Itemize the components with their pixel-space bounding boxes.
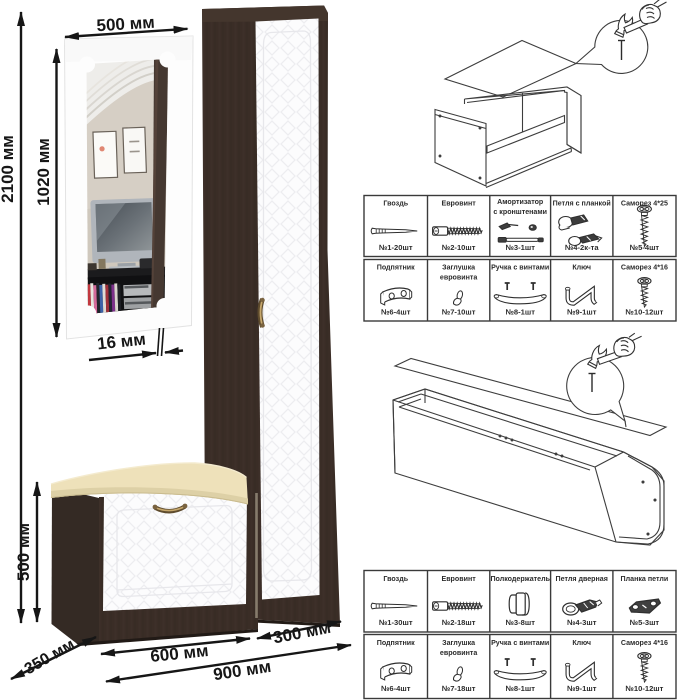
svg-text:№7-10шт: №7-10шт bbox=[442, 308, 476, 317]
svg-text:№1-30шт: №1-30шт bbox=[379, 618, 413, 627]
svg-text:Евровинт: Евровинт bbox=[441, 200, 476, 208]
svg-text:№4-3шт: №4-3шт bbox=[567, 618, 597, 627]
svg-text:№8-1шт: №8-1шт bbox=[505, 308, 535, 317]
svg-text:Гвоздь: Гвоздь bbox=[383, 200, 408, 208]
svg-text:Ручка с винтами: Ручка с винтами bbox=[491, 639, 549, 647]
svg-text:№6-4шт: №6-4шт bbox=[381, 308, 411, 317]
svg-text:Петля дверная: Петля дверная bbox=[556, 575, 608, 583]
svg-text:№10-12шт: №10-12шт bbox=[625, 684, 663, 693]
svg-text:Гвоздь: Гвоздь bbox=[383, 575, 408, 583]
svg-text:№5-3шт: №5-3шт bbox=[630, 618, 660, 627]
svg-text:№3-1шт: №3-1шт bbox=[505, 243, 535, 252]
svg-text:№6-4шт: №6-4шт bbox=[381, 684, 411, 693]
svg-text:Подпятник: Подпятник bbox=[377, 264, 415, 272]
svg-text:Полкодержатель: Полкодержатель bbox=[490, 575, 550, 583]
svg-text:№9-1шт: №9-1шт bbox=[567, 684, 597, 693]
svg-text:№9-1шт: №9-1шт bbox=[567, 308, 597, 317]
svg-text:Саморез 4*16: Саморез 4*16 bbox=[621, 264, 668, 272]
svg-text:№5-4шт: №5-4шт bbox=[630, 243, 660, 252]
svg-text:Заглушка: Заглушка bbox=[442, 639, 475, 647]
svg-text:№10-12шт: №10-12шт bbox=[625, 308, 663, 317]
svg-text:№1-20шт: №1-20шт bbox=[379, 243, 413, 252]
svg-text:500 мм: 500 мм bbox=[14, 523, 33, 581]
svg-text:с кронштенами: с кронштенами bbox=[493, 208, 547, 216]
svg-text:№2-18шт: №2-18шт bbox=[442, 618, 476, 627]
svg-text:евровинта: евровинта bbox=[440, 274, 477, 282]
svg-text:№2-10шт: №2-10шт bbox=[442, 243, 476, 252]
svg-text:Подпятник: Подпятник bbox=[377, 639, 415, 647]
svg-text:евровинта: евровинта bbox=[440, 649, 477, 657]
svg-text:№8-1шт: №8-1шт bbox=[505, 684, 535, 693]
svg-text:№3-8шт: №3-8шт bbox=[505, 618, 535, 627]
svg-text:Амортизатор: Амортизатор bbox=[497, 198, 544, 206]
svg-text:№7-18шт: №7-18шт bbox=[442, 684, 476, 693]
svg-text:Заглушка: Заглушка bbox=[442, 264, 475, 272]
svg-text:Планка петли: Планка петли bbox=[621, 575, 669, 583]
svg-text:500 мм: 500 мм bbox=[96, 13, 155, 36]
svg-text:№4-2к-та: №4-2к-та bbox=[565, 243, 599, 252]
svg-text:Евровинт: Евровинт bbox=[441, 575, 476, 583]
svg-text:Ключ: Ключ bbox=[572, 264, 591, 272]
svg-text:1020 мм: 1020 мм bbox=[34, 138, 53, 206]
svg-text:Ручка с винтами: Ручка с винтами bbox=[491, 264, 549, 272]
svg-text:Саморез 4*16: Саморез 4*16 bbox=[621, 639, 668, 647]
svg-text:Петля с планкой: Петля с планкой bbox=[553, 200, 611, 208]
svg-text:2100 мм: 2100 мм bbox=[0, 135, 17, 203]
svg-text:Ключ: Ключ bbox=[572, 639, 591, 647]
